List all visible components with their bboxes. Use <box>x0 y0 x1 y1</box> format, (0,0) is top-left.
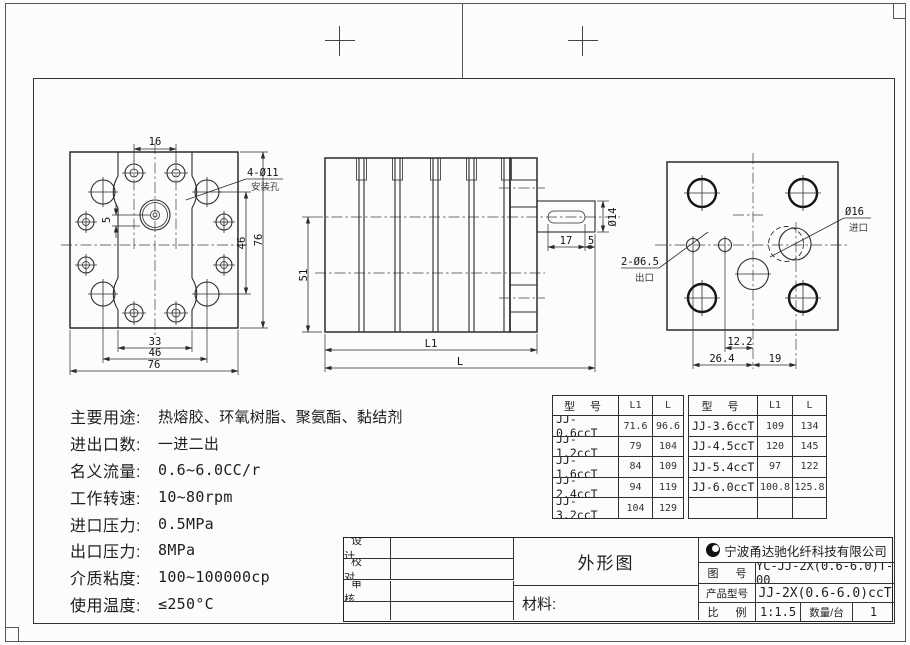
dim-51: 51 <box>298 269 310 282</box>
drawing-no-label: 图 号 <box>699 563 756 584</box>
dim-shaft-diameter: Ø14 <box>607 208 619 227</box>
spec-value: 100~100000cp <box>158 568 270 586</box>
audit-value <box>391 581 514 602</box>
spec-line: 名义流量:0.6~6.0CC/r <box>70 457 403 484</box>
audit-label: 审 核 <box>344 581 391 602</box>
spec-label: 出口压力: <box>70 538 158 562</box>
table-row: JJ-6.0ccT100.8125.8 <box>689 478 826 498</box>
spec-line: 进口压力:0.5MPa <box>70 510 403 537</box>
table-cell: 125.8 <box>793 478 826 498</box>
spec-value: 0.5MPa <box>158 515 214 533</box>
spec-label: 主要用途: <box>70 404 158 428</box>
table-row: JJ-2.4ccT94119 <box>553 478 683 498</box>
company-name: 宁波甬达驰化纤科技有限公司 <box>724 541 887 560</box>
header-model: 型 号 <box>553 396 619 416</box>
table-cell: 109 <box>758 416 793 436</box>
table-cell: JJ-1.6ccT <box>553 457 619 477</box>
table-cell: 145 <box>793 437 826 457</box>
scale-value: 1:1.5 <box>756 603 801 621</box>
table-cell: 94 <box>619 478 653 498</box>
table-row <box>689 498 826 518</box>
table-cell: 97 <box>758 457 793 477</box>
dim-L1: L1 <box>425 338 438 350</box>
product-model-label: 产品型号 <box>699 584 756 603</box>
spec-value: ≤250°C <box>158 595 214 613</box>
header-L1: L1 <box>758 396 793 416</box>
corner-bolt-holes <box>684 175 821 316</box>
table-cell: JJ-3.6ccT <box>689 416 758 436</box>
table-cell: 122 <box>793 457 826 477</box>
table-cell: 120 <box>758 437 793 457</box>
table-cell: 79 <box>619 437 653 457</box>
table-cell: JJ-4.5ccT <box>689 437 758 457</box>
spec-line: 工作转速:10~80rpm <box>70 483 403 510</box>
front-view: 16 5 46 76 33 46 76 <box>61 136 283 375</box>
leader-inlet-spec: Ø16 <box>845 206 864 218</box>
leader-inlet-label: 进口 <box>849 223 868 234</box>
end-cap <box>499 158 545 332</box>
dim-46-right: 46 <box>236 237 248 250</box>
table-cell <box>758 498 793 518</box>
table-row: JJ-1.2ccT79104 <box>553 437 683 457</box>
header-L1: L1 <box>619 396 653 416</box>
design-label: 设 计 <box>344 538 391 559</box>
leader-outlet-label: 出口 <box>635 272 654 284</box>
leader-mounting-hole-label: 安装孔 <box>251 181 280 193</box>
drive-shaft <box>537 201 595 232</box>
dim-5: 5 <box>101 217 113 223</box>
spec-label: 名义流量: <box>70 458 158 482</box>
company-cell: 宁波甬达驰化纤科技有限公司 <box>699 538 894 563</box>
drawing-no-value: YC-JJ-2X(0.6-6.0)T-00 <box>756 563 894 584</box>
table-cell: 84 <box>619 457 653 477</box>
table-cell: 100.8 <box>758 478 793 498</box>
side-view: 17 5 Ø14 51 L1 L <box>298 158 620 372</box>
table-cell: 71.6 <box>619 416 653 436</box>
table-cell: 129 <box>653 498 683 518</box>
company-logo <box>706 543 720 557</box>
spec-value: 热熔胶、环氧树脂、聚氨酯、黏结剂 <box>158 406 403 427</box>
model-table-left: 型 号 L1 L JJ-0.6ccT71.696.6JJ-1.2ccT79104… <box>552 395 684 519</box>
table-cell: 119 <box>653 478 683 498</box>
spec-value: 10~80rpm <box>158 488 233 506</box>
table-cell: JJ-1.2ccT <box>553 437 619 457</box>
spec-value: 0.6~6.0CC/r <box>158 461 261 479</box>
header-model: 型 号 <box>689 396 758 416</box>
dim-16: 16 <box>149 136 162 148</box>
sign-empty-label <box>344 602 391 620</box>
table-cell: 134 <box>793 416 826 436</box>
material-label: 材料: <box>514 586 699 620</box>
table-row: JJ-3.6ccT109134 <box>689 416 826 436</box>
table-cell: JJ-2.4ccT <box>553 478 619 498</box>
table-header-row: 型 号 L1 L <box>553 396 683 416</box>
table-cell: 96.6 <box>653 416 683 436</box>
dim-L: L <box>457 356 463 368</box>
dim-17: 17 <box>560 235 573 247</box>
table-cell: 104 <box>653 437 683 457</box>
dim-12.2: 12.2 <box>727 336 752 348</box>
drawing-sheet: 16 5 46 76 33 46 76 <box>0 0 910 645</box>
table-cell <box>793 498 826 518</box>
table-cell <box>689 498 758 518</box>
table-row: JJ-5.4ccT97122 <box>689 457 826 477</box>
table-row: JJ-0.6ccT71.696.6 <box>553 416 683 436</box>
rear-view: 12.2 26.4 19 2-Ø6.5 出口 Ø16 进口 <box>621 153 871 369</box>
dim-19: 19 <box>769 353 782 365</box>
table-cell: JJ-5.4ccT <box>689 457 758 477</box>
spec-label: 进口压力: <box>70 512 158 536</box>
table-row: JJ-4.5ccT120145 <box>689 437 826 457</box>
registration-mark <box>325 26 355 56</box>
top-strip-divider <box>462 3 463 78</box>
leader-outlet-spec: 2-Ø6.5 <box>621 256 659 268</box>
dim-5-shaft: 5 <box>588 235 594 247</box>
dim-46-bottom: 46 <box>149 347 162 359</box>
check-label: 校 对 <box>344 559 391 580</box>
check-value <box>391 559 514 580</box>
drawing-name: 外形图 <box>514 538 699 586</box>
corner-tab-bottom-left <box>5 627 19 642</box>
quantity-value: 1 <box>853 603 894 621</box>
table-header-row: 型 号 L1 L <box>689 396 826 416</box>
corner-tab-top-right <box>893 3 906 19</box>
header-L: L <box>793 396 826 416</box>
table-row: JJ-3.2ccT104129 <box>553 498 683 518</box>
spec-line: 主要用途:热熔胶、环氧树脂、聚氨酯、黏结剂 <box>70 403 403 430</box>
dim-76-right: 76 <box>253 234 265 247</box>
table-cell: 104 <box>619 498 653 518</box>
table-cell: JJ-0.6ccT <box>553 416 619 436</box>
leader-mounting-hole-spec: 4-Ø11 <box>247 167 279 179</box>
design-value <box>391 538 514 559</box>
product-model-value: JJ-2X(0.6-6.0)ccT <box>756 584 894 603</box>
table-cell: JJ-6.0ccT <box>689 478 758 498</box>
spec-label: 工作转速: <box>70 485 158 509</box>
spec-value: 8MPa <box>158 541 195 559</box>
plate-stack <box>357 158 512 332</box>
spec-label: 介质粘度: <box>70 565 158 589</box>
registration-mark <box>568 26 598 56</box>
spec-label: 进出口数: <box>70 431 158 455</box>
model-table-right: 型 号 L1 L JJ-3.6ccT109134JJ-4.5ccT120145J… <box>688 395 827 519</box>
spec-value: 一进二出 <box>158 433 219 454</box>
dim-76-bottom: 76 <box>148 359 161 371</box>
scale-label: 比 例 <box>699 603 756 621</box>
spec-label: 使用温度: <box>70 592 158 616</box>
title-block: 设 计 校 对 审 核 外形图 材料: 宁波甬达驰化纤科技有限公司 图 号 YC… <box>343 537 893 622</box>
header-L: L <box>653 396 683 416</box>
table-cell: 109 <box>653 457 683 477</box>
dim-26.4: 26.4 <box>709 353 734 365</box>
quantity-label: 数量/台 <box>801 603 853 621</box>
table-cell: JJ-3.2ccT <box>553 498 619 518</box>
inlet-port <box>769 227 812 262</box>
table-row: JJ-1.6ccT84109 <box>553 457 683 477</box>
sign-empty-value <box>391 602 514 620</box>
spec-line: 进出口数:一进二出 <box>70 430 403 457</box>
